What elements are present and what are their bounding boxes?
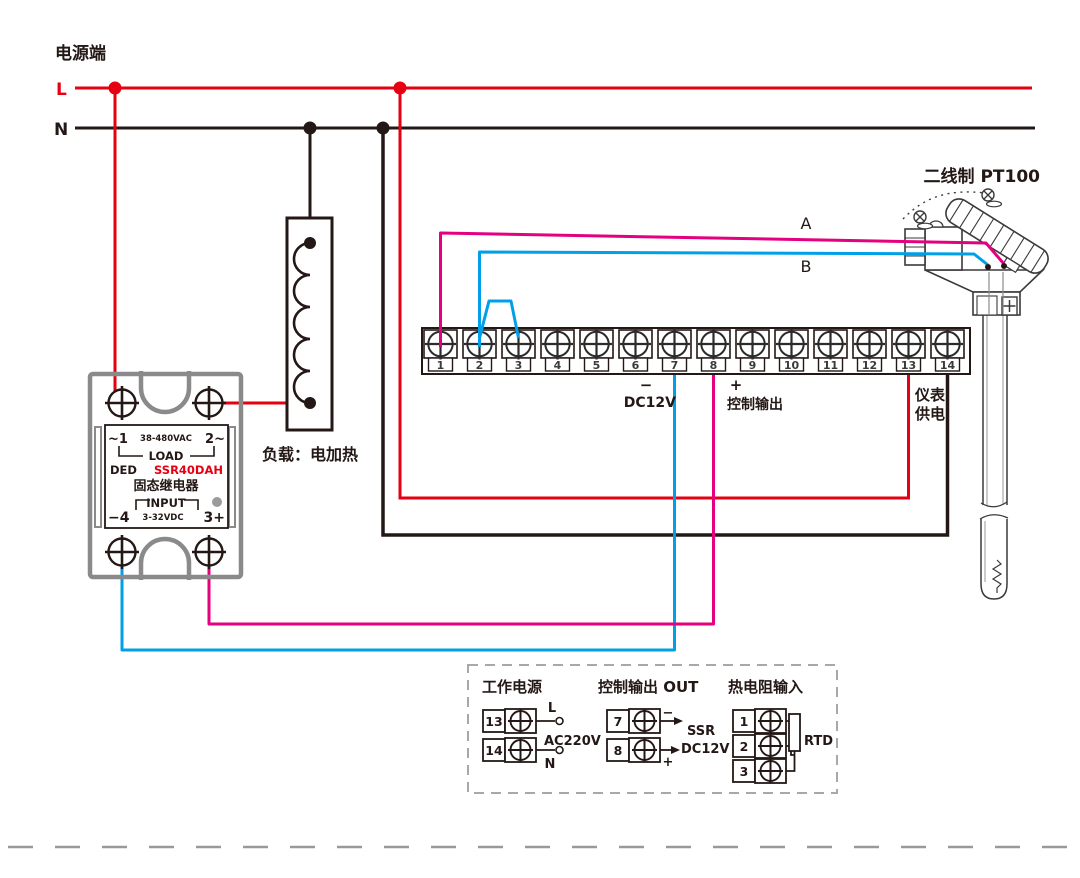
arrow-icon [674, 717, 683, 725]
legend-terminal-14: 14 [485, 743, 503, 758]
legend-voltage-label: AC220V [544, 734, 601, 749]
terminal-number-1: 1 [437, 359, 445, 372]
junction-dot [304, 397, 316, 409]
terminal-number-3: 3 [515, 359, 523, 372]
meter-supply-label-2: 供电 [914, 405, 945, 423]
ssr-voltage-label: 38-480VAC [140, 434, 192, 444]
ssr-model: SSR40DAH [154, 463, 223, 477]
legend-output-title: 控制输出 OUT [598, 678, 699, 696]
terminal-number-11: 11 [823, 359, 838, 372]
legend-rtd-section: 热电阻输入 1 2 3 RTD [728, 678, 833, 784]
legend-terminal-2: 2 [740, 739, 749, 754]
terminal-number-5: 5 [593, 359, 601, 372]
terminal-number-13: 13 [901, 359, 916, 372]
ssr-brand: DED [110, 463, 137, 477]
screw-icon [192, 535, 226, 569]
heater-load: 负载：电加热 [262, 218, 358, 464]
terminal-number-10: 10 [784, 359, 800, 372]
head-body [925, 227, 962, 270]
legend-box: 工作电源 13 L 14 N AC220V 控制输出 OUT 7 [468, 665, 837, 793]
sensor-title: 二线制 PT100 [924, 166, 1041, 187]
ssr-terminal3-label: 3+ [204, 510, 225, 526]
arrow-icon [671, 746, 680, 754]
diagram-canvas: 电源端 L N ~1 38-480VAC 2~ LO [0, 0, 1080, 878]
ssr-top-notch [141, 371, 189, 412]
ssr-input-voltage: 3-32VDC [142, 513, 183, 523]
wire-l-to-terminal13 [400, 88, 909, 498]
ssr-name-cn: 固态继电器 [133, 478, 199, 494]
head-taper [925, 270, 1043, 292]
legend-rtd-label: RTD [804, 734, 833, 749]
screw-icon [192, 386, 226, 420]
label-n: N [54, 120, 68, 140]
terminal-number-7: 7 [671, 359, 679, 372]
legend-n-label: N [545, 757, 556, 772]
legend-ssr-label: SSR [687, 724, 715, 739]
wire-b-label: B [801, 257, 812, 276]
lid-screw-icon [982, 189, 1002, 207]
legend-terminal-8: 8 [614, 743, 623, 758]
load-caption: 负载：电加热 [262, 445, 358, 464]
legend-output-section: 控制输出 OUT 7 − 8 + SSR DC12V [598, 678, 729, 770]
wire-end-dot [1001, 263, 1007, 269]
terminal-block: 1 2 3 4 5 6 7 8 9 10 11 12 13 14 − + DC1… [422, 328, 970, 423]
terminal-number-2: 2 [476, 359, 484, 372]
power-bus: 电源端 L N [54, 43, 1035, 140]
terminal-number-14: 14 [940, 359, 956, 372]
wire-end-dot [985, 264, 991, 270]
neck-detail [977, 296, 997, 315]
legend-l-label: L [548, 701, 556, 716]
legend-terminal-3: 3 [740, 764, 749, 779]
probe-break-mark [980, 502, 1008, 519]
ssr-relay: ~1 38-480VAC 2~ LOAD DED SSR40DAH 固态继电器 … [90, 371, 241, 580]
ssr-led-indicator [212, 497, 222, 507]
legend-dc12v-label: DC12V [681, 742, 729, 757]
dc12v-label: DC12V [624, 395, 676, 411]
legend-minus-label: − [663, 706, 674, 721]
legend-terminal-1: 1 [740, 714, 749, 729]
legend-terminal-7: 7 [614, 714, 623, 729]
ssr-side-slot [95, 427, 101, 527]
legend-terminal-13: 13 [485, 714, 502, 729]
ssr-input-label: INPUT [146, 496, 186, 510]
legend-rtd-title: 热电阻输入 [728, 678, 803, 696]
wire-a-label: A [801, 214, 812, 233]
ssr-side-slot [229, 427, 235, 527]
ssr-bottom-notch [141, 539, 189, 580]
lid-screw-icon [914, 211, 933, 229]
screw-icon [105, 386, 139, 420]
terminal-number-4: 4 [554, 359, 562, 372]
ssr-terminal2-label: 2~ [205, 432, 225, 447]
junction-dot [304, 237, 316, 249]
terminal-point [556, 718, 563, 725]
legend-power-title: 工作电源 [482, 678, 542, 696]
power-title: 电源端 [55, 43, 106, 64]
wiring-diagram: 电源端 L N ~1 38-480VAC 2~ LO [0, 0, 1080, 878]
ssr-terminal4-label: −4 [108, 510, 130, 526]
label-l: L [56, 80, 67, 100]
dc-plus-label: + [730, 376, 743, 394]
terminal-number-9: 9 [749, 359, 757, 372]
terminal-number-6: 6 [632, 359, 640, 372]
legend-power-section: 工作电源 13 L 14 N AC220V [482, 678, 601, 772]
terminal-number-8: 8 [710, 359, 718, 372]
resistor-icon [789, 714, 800, 751]
dc-minus-label: − [640, 376, 653, 394]
terminal-number-12: 12 [862, 359, 877, 372]
control-output-label: 控制输出 [727, 396, 783, 413]
ssr-terminal1-label: ~1 [108, 432, 128, 447]
meter-supply-label-1: 仪表 [914, 386, 946, 404]
probe-tube-inner [987, 314, 1003, 505]
legend-plus-label: + [663, 755, 674, 770]
screw-icon [105, 535, 139, 569]
ssr-load-label: LOAD [149, 449, 184, 463]
